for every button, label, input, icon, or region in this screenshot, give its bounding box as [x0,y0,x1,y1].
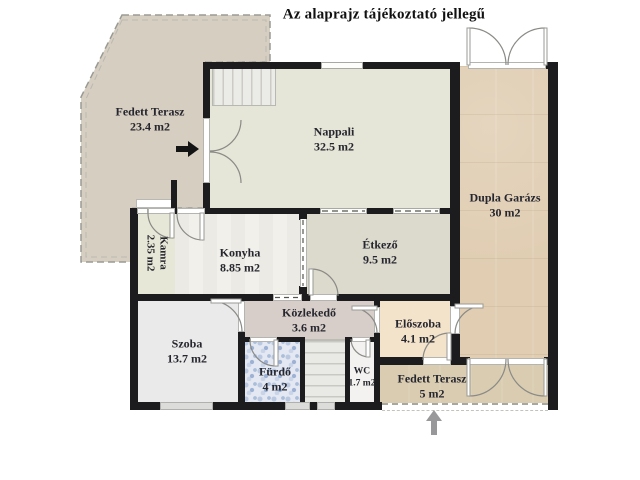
staircase-nappali [212,68,276,106]
wall [544,357,558,365]
label-konyha: Konyha 8.85 m2 [220,245,261,274]
room-area: 4 m2 [259,379,291,394]
room-name: Szoba [167,336,207,351]
arrow-head [188,141,199,157]
door-opening-konyha [177,208,205,214]
arrow-stem [176,146,188,152]
door-opening-kamra [148,208,175,214]
room-name: Fedett Terasz [115,104,185,119]
room-name: Fürdő [259,364,291,379]
room-area: 23.4 m2 [115,119,185,134]
passage-konyha-etkezo [300,219,307,287]
arrow-stem [430,421,438,436]
wall [345,337,352,342]
floor-plan: Az alaprajz tájékoztató jellegű Fedett T… [0,0,640,480]
staircase-lower [305,339,345,404]
arrow-head [426,410,442,421]
window-south-2 [317,402,335,410]
terrace-open-edge [382,403,548,411]
door-opening-eloszoba-koz [374,307,380,333]
room-name: Fedett Terasz [398,371,467,386]
door-opening-furdo [250,337,277,342]
door-opening-szoba [238,301,245,332]
door-opening-garage-gate [468,62,546,69]
door-opening-terasz-double [468,358,546,365]
passage-konyha-koz [273,294,302,301]
terrace-sill [136,199,174,208]
wall [450,357,470,365]
wall [213,402,285,410]
door-opening-etkezo [310,294,337,301]
door-leaf-garage-left [467,28,470,65]
label-kamra: Kamra 2.35 m2 [143,235,170,272]
wall [277,337,305,342]
label-eloszoba: Előszoba 4.1 m2 [395,316,441,345]
entrance-arrow-icon [176,141,200,157]
wall [367,208,393,214]
room-name: Kamra [156,235,169,272]
wall [238,332,245,404]
door-opening-wc [352,337,370,342]
wall [310,402,317,410]
room-area: 8.85 m2 [220,260,261,275]
door-opening-eloszoba-garage [450,306,460,334]
window-etkezo-1 [320,208,367,214]
window-etkezo-2 [393,208,440,214]
room-area: 4.1 m2 [395,331,441,346]
room-name: Étkező [362,237,397,252]
window-kamra [137,208,148,214]
wall [377,357,423,365]
label-dupla-garazs: Dupla Garázs 30 m2 [469,190,540,219]
label-fedett-terasz-also: Fedett Terasz 5 m2 [398,371,467,400]
wall [374,295,380,307]
wall [440,208,455,214]
room-name: Konyha [220,245,261,260]
wall [300,339,305,404]
label-kozlekedo: Közlekedő 3.6 m2 [282,305,336,334]
wall [130,402,160,410]
plan-title: Az alaprajz tájékoztató jellegű [283,7,485,24]
label-szoba: Szoba 13.7 m2 [167,336,207,365]
wall [203,62,210,118]
room-name: Előszoba [395,316,441,331]
room-area: 30 m2 [469,205,540,220]
room-area: 1.7 m2 [349,378,376,390]
window-south-1 [285,402,310,410]
door-leaf-garage-right [544,28,547,65]
label-furdo: Fürdő 4 m2 [259,364,291,393]
room-name: WC [349,366,376,378]
room-area: 32.5 m2 [314,139,355,154]
label-fedett-terasz: Fedett Terasz 23.4 m2 [115,104,185,133]
wall [450,62,460,307]
room-area: 3.6 m2 [282,320,336,335]
room-name: Közlekedő [282,305,336,320]
terrace-entrance-arrow-icon [426,410,442,437]
room-area: 9.5 m2 [362,252,397,267]
door-arc-garage-left [469,28,506,65]
wall [335,402,382,410]
wall [130,294,273,301]
label-wc: WC 1.7 m2 [349,366,376,389]
wall [130,208,138,410]
wall [203,62,321,69]
door-opening-eloszoba-terasz [423,357,451,365]
wall [363,62,460,69]
room-area: 5 m2 [398,386,467,401]
room-area: 2.35 m2 [143,235,156,272]
wall [337,294,455,301]
label-nappali: Nappali 32.5 m2 [314,124,355,153]
door-opening-nappali-terasz [203,118,210,183]
room-area: 13.7 m2 [167,351,207,366]
room-name: Dupla Garázs [469,190,540,205]
door-arc-garage-right [508,28,545,65]
window-nappali-north [321,62,363,69]
room-name: Nappali [314,124,355,139]
label-etkezo: Étkező 9.5 m2 [362,237,397,266]
window-szoba-south [160,402,213,410]
wall [243,337,250,342]
